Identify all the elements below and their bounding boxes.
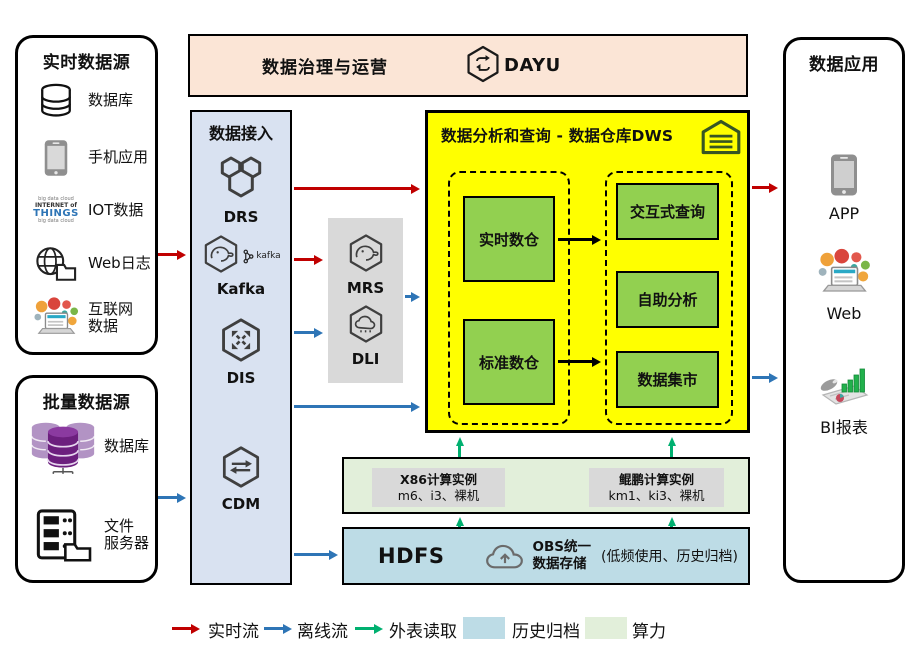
governance-title: 数据治理与运营 [262, 53, 388, 78]
arrow-mrs-to-dws [405, 295, 416, 298]
realtime-sources-title: 实时数据源 [18, 48, 155, 73]
iot-wordcloud-icon: big data cloud INTERNET of THINGS big da… [24, 190, 88, 232]
legend-external-label: 外表读取 [389, 617, 457, 642]
dayu-product: DAYU [466, 45, 561, 87]
interactive-query-box: 交互式查询 [616, 183, 719, 240]
service-label: CDM [222, 495, 260, 513]
kafka-hexagon-icon [201, 234, 241, 278]
legend-compute-label: 算力 [632, 617, 666, 642]
list-item: 文件服务器 [22, 508, 158, 562]
list-item: Web日志 [24, 245, 156, 283]
x86-instance-box: X86计算实例 m6、i3、裸机 [372, 468, 505, 507]
arrow-standard-to-services [558, 360, 597, 363]
arrow-hdfs-to-compute-left [458, 522, 461, 527]
internet-collage-icon [24, 296, 88, 340]
web-log-icon [24, 245, 88, 283]
dayu-hexagon-icon [466, 45, 500, 87]
dis-icon [218, 317, 264, 367]
source-label: IOT数据 [88, 202, 143, 219]
legend-realtime-arrow [172, 627, 196, 630]
hdfs-label: HDFS [378, 544, 444, 568]
warehouse-icon [700, 118, 742, 160]
list-item: 数据库 [22, 418, 158, 476]
data-apps-title: 数据应用 [786, 50, 902, 75]
legend-offline-arrow [264, 627, 288, 630]
dis-service: DIS [192, 317, 290, 387]
dayu-label: DAYU [504, 55, 561, 76]
arrow-batch-src-to-ingest [158, 496, 182, 499]
batch-sources-panel: 批量数据源 数据库 文件服务器 [15, 375, 158, 583]
list-item: 互联网数据 [24, 296, 156, 340]
dws-title: 数据分析和查询 - 数据仓库DWS [441, 124, 673, 146]
realtime-warehouse-box: 实时数仓 [463, 196, 555, 282]
legend-realtime-label: 实时流 [208, 617, 259, 642]
obs-cloud-icon [484, 541, 526, 571]
service-label: MRS [347, 279, 384, 297]
source-label: 数据库 [104, 438, 149, 455]
arrow-realtime-to-services [558, 238, 597, 241]
file-server-icon [22, 508, 104, 562]
source-label: 手机应用 [88, 149, 148, 166]
list-item: 数据库 [24, 82, 156, 120]
drs-service: DRS [192, 152, 290, 226]
legend-offline-label: 离线流 [297, 617, 348, 642]
drs-icon [214, 152, 268, 206]
dws-panel: 数据分析和查询 - 数据仓库DWS 实时数仓 标准数仓 交互式查询 自助分析 数… [425, 110, 750, 433]
purple-database-icon [22, 418, 104, 476]
source-label: 互联网数据 [88, 301, 146, 336]
app-label: APP [829, 204, 859, 223]
data-apps-panel: 数据应用 APP Web BI报表 [783, 37, 905, 583]
list-item: big data cloud INTERNET of THINGS big da… [24, 190, 156, 232]
source-label: 文件服务器 [104, 518, 149, 553]
source-label: Web日志 [88, 255, 151, 272]
data-ingest-panel: 数据接入 DRS kafka Kafka DIS [190, 110, 292, 585]
mrs-icon [346, 233, 386, 277]
arrow-ingest-to-mrs [294, 258, 319, 261]
architecture-diagram: 数据治理与运营 DAYU 实时数据源 数据库 手机应用 big dat [0, 0, 914, 651]
dli-service: DLI [328, 304, 403, 368]
arrow-ingest-to-dws-realtime [294, 187, 416, 190]
arrow-ingest-to-dli [294, 331, 319, 334]
arrow-realtime-src-to-ingest [158, 253, 182, 256]
governance-bar: 数据治理与运营 DAYU [188, 34, 748, 97]
legend-compute-swatch [585, 617, 627, 639]
standard-warehouse-box: 标准数仓 [463, 319, 555, 405]
data-ingest-title: 数据接入 [192, 120, 290, 144]
arrow-compute-to-dws-left [458, 442, 461, 457]
service-label: DIS [227, 369, 256, 387]
compute-instances-panel: X86计算实例 m6、i3、裸机 鲲鹏计算实例 km1、ki3、裸机 [342, 457, 750, 514]
web-item: Web [786, 248, 902, 323]
legend-archive-swatch [463, 617, 505, 639]
arrow-ingest-to-hdfs [294, 553, 334, 556]
hdfs-storage-panel: HDFS OBS统一数据存储 (低频使用、历史归档) [342, 527, 750, 585]
database-icon [24, 82, 88, 120]
batch-sources-title: 批量数据源 [18, 388, 155, 413]
bi-item: BI报表 [786, 360, 902, 438]
source-label: 数据库 [88, 92, 133, 109]
cdm-service: CDM [192, 445, 290, 513]
app-phone-icon [829, 152, 859, 202]
processing-panel: MRS DLI [328, 218, 403, 383]
app-item: APP [786, 152, 902, 223]
list-item: 手机应用 [24, 137, 156, 179]
mrs-service: MRS [328, 233, 403, 297]
arrow-dws-to-apps-realtime [752, 186, 774, 189]
data-mart-box: 数据集市 [616, 351, 719, 408]
bi-report-icon [818, 360, 870, 412]
legend-archive-label: 历史归档 [512, 617, 580, 642]
web-collage-icon [817, 248, 871, 302]
kafka-logo-badge: kafka [243, 249, 280, 264]
arrow-ingest-to-dws-offline [294, 405, 416, 408]
legend-external-arrow [355, 627, 379, 630]
web-label: Web [827, 304, 862, 323]
arrow-hdfs-to-compute-right [670, 522, 673, 527]
service-label: Kafka [217, 280, 265, 298]
obs-label: OBS统一数据存储 [532, 539, 591, 573]
storage-note: (低频使用、历史归档) [601, 546, 738, 566]
self-analysis-box: 自助分析 [616, 271, 719, 328]
mobile-phone-icon [24, 137, 88, 179]
cdm-icon [219, 445, 263, 493]
arrow-dws-to-apps-offline [752, 376, 774, 379]
service-label: DRS [224, 208, 259, 226]
dli-icon [346, 304, 386, 348]
kafka-service: kafka Kafka [192, 234, 290, 298]
arrow-compute-to-dws-right [670, 442, 673, 457]
realtime-sources-panel: 实时数据源 数据库 手机应用 big data cloud INTERNET o… [15, 35, 158, 355]
kunpeng-instance-box: 鲲鹏计算实例 km1、ki3、裸机 [589, 468, 724, 507]
bi-label: BI报表 [820, 414, 868, 438]
service-label: DLI [352, 350, 380, 368]
